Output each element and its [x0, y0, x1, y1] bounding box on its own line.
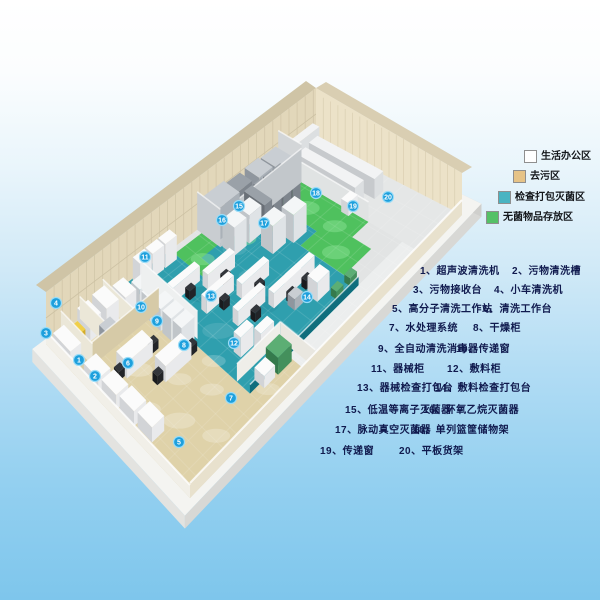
plan-marker-4: 4	[51, 298, 62, 309]
plan-marker-number: 14	[303, 295, 311, 302]
plan-marker-18: 18	[311, 188, 322, 199]
plan-marker-number: 16	[218, 218, 226, 225]
plan-marker-1: 1	[74, 355, 85, 366]
plan-marker-number: 5	[177, 440, 181, 447]
plan-marker-9: 9	[152, 316, 163, 327]
equipment-list-item: 12、敷料柜	[447, 360, 501, 375]
plan-marker-number: 3	[44, 331, 48, 338]
equipment-list-item: 8、干燥柜	[473, 319, 521, 334]
equipment-list-item: 20、平板货架	[399, 442, 464, 457]
plan-marker-number: 15	[235, 204, 243, 211]
plan-marker-number: 1	[77, 358, 81, 365]
plan-marker-11: 11	[140, 252, 151, 263]
equipment-list-item: 19、传递窗	[320, 442, 374, 457]
plan-marker-3: 3	[41, 328, 52, 339]
equipment-list-item: 5、高分子清洗工作站	[392, 300, 493, 315]
equipment-list-item: 14、敷料检查打包台	[435, 379, 531, 394]
legend-color-swatch	[524, 150, 537, 163]
plan-marker-number: 20	[384, 195, 392, 202]
plan-marker-number: 11	[141, 255, 149, 262]
equipment-list-item: 1、超声波清洗机	[420, 262, 500, 277]
plan-marker-19: 19	[348, 201, 359, 212]
legend-item: 检查打包灭菌区	[498, 191, 585, 204]
equipment-list-item: 18、单列篮筐储物架	[413, 421, 509, 436]
plan-marker-number: 19	[349, 204, 357, 211]
plan-marker-8: 8	[179, 340, 190, 351]
equipment-list-item: 10、传递窗	[456, 340, 510, 355]
plan-marker-number: 2	[93, 374, 97, 381]
plan-marker-number: 18	[312, 191, 320, 198]
plan-marker-12: 12	[229, 338, 240, 349]
legend-item: 生活办公区	[524, 150, 591, 163]
plan-marker-2: 2	[90, 371, 101, 382]
plan-marker-13: 13	[206, 291, 217, 302]
legend-label: 检查打包灭菌区	[515, 191, 585, 204]
plan-marker-17: 17	[259, 218, 270, 229]
equipment-list-item: 11、器械柜	[371, 360, 425, 375]
plan-marker-number: 4	[54, 301, 58, 308]
legend-item: 无菌物品存放区	[486, 211, 573, 224]
equipment-list-item: 2、污物清洗槽	[512, 262, 581, 277]
equipment-list-item: 6、清洗工作台	[483, 300, 552, 315]
plan-marker-number: 17	[260, 221, 268, 228]
plan-marker-number: 10	[137, 305, 145, 312]
legend-label: 生活办公区	[541, 150, 591, 163]
legend-label: 无菌物品存放区	[503, 211, 573, 224]
plan-marker-14: 14	[302, 292, 313, 303]
plan-marker-number: 8	[182, 343, 186, 350]
legend-label: 去污区	[530, 170, 560, 183]
plan-marker-number: 9	[155, 319, 159, 326]
equipment-list-item: 7、水处理系统	[389, 319, 458, 334]
equipment-list-item: 4、小车清洗机	[494, 281, 563, 296]
equipment-list-item: 16、环氧乙烷灭菌器	[423, 401, 519, 416]
equipment-list-item: 3、污物接收台	[413, 281, 482, 296]
plan-marker-number: 6	[126, 361, 130, 368]
plan-marker-number: 13	[207, 294, 215, 301]
plan-marker-15: 15	[234, 201, 245, 212]
plan-marker-number: 12	[230, 341, 238, 348]
plan-marker-5: 5	[174, 437, 185, 448]
plan-marker-7: 7	[226, 393, 237, 404]
plan-marker-16: 16	[217, 215, 228, 226]
legend-color-swatch	[513, 170, 526, 183]
plan-marker-10: 10	[136, 302, 147, 313]
legend-color-swatch	[498, 191, 511, 204]
plan-marker-6: 6	[123, 358, 134, 369]
legend-item: 去污区	[513, 170, 560, 183]
plan-marker-20: 20	[383, 192, 394, 203]
legend-color-swatch	[486, 211, 499, 224]
cssd-floorplan-infographic: 1234567891011121314151617181920 生活办公区去污区…	[0, 0, 600, 600]
plan-marker-number: 7	[229, 396, 233, 403]
